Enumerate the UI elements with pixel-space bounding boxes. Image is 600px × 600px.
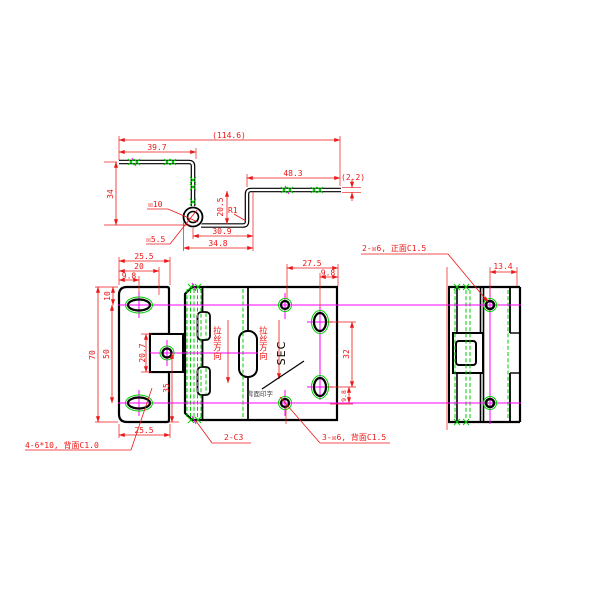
note-slots: 4-6*10, 背面C1.0 [25,440,99,450]
dim-curl-inner: ☒5.5 [146,235,165,244]
profile-view-sheet [119,162,341,228]
dim-front-top-width: 25.5 [134,252,153,261]
brush-direction-label-1: 拉丝方向 [211,326,220,360]
dim-height: 34 [106,189,115,199]
dim-face-oval-offset: 9.8 [321,269,336,278]
dim-front-slot-offset: 10 [103,291,112,301]
dim-front-height: 70 [88,350,97,360]
dim-front-lower-span: 35 [162,383,171,393]
cad-drawing-page: (114.6) 39.7 34 48.3 (2.2) 20.5 R1 ☒10 ☒… [0,0,600,600]
section-label: SEC [275,341,288,366]
dim-bottom-total: 34.8 [208,239,227,248]
dim-face-oval-to-hole: 9.8 [340,390,348,402]
dim-bottom-offset: 30.9 [212,227,231,236]
dim-front-tab-height: 20.7 [138,343,147,362]
dim-curl-outer: ☒10 [148,200,163,209]
knuckle-cutout-bottom [198,367,211,395]
dim-front-bottom-width: 25.5 [134,426,153,435]
note-face-holes: 3-☒6, 背面C1.5 [322,432,386,442]
dim-step-drop: 20.5 [216,197,225,216]
dim-overall: (114.6) [212,131,246,140]
center-slot [239,331,257,377]
note-chamfer: 2-C3 [224,433,243,442]
dim-face-oval-spacing: 32 [342,349,351,359]
dim-face-hole-offset: 27.5 [302,259,321,268]
dim-front-top-mid: 20 [134,262,144,271]
knuckle-cutout-top [198,312,211,340]
dim-bend-radius: R1 [228,206,238,215]
dim-thickness: (2.2) [341,173,365,182]
back-print-note: 背面印字 [247,389,274,398]
dim-top-flange: 39.7 [147,143,166,152]
dim-side-width: 13.4 [493,262,512,271]
cad-drawing-canvas: (114.6) 39.7 34 48.3 (2.2) 20.5 R1 ☒10 ☒… [0,0,600,600]
brush-direction-label-2: 拉丝方向 [257,326,266,360]
dim-front-slot-spacing: 50 [102,349,111,359]
dim-front-top-slot: 9.8 [122,272,137,281]
dim-right-flange: 48.3 [283,169,302,178]
curl-inner-circle [188,212,199,223]
note-side-holes: 2-☒6, 正面C1.5 [362,244,426,253]
